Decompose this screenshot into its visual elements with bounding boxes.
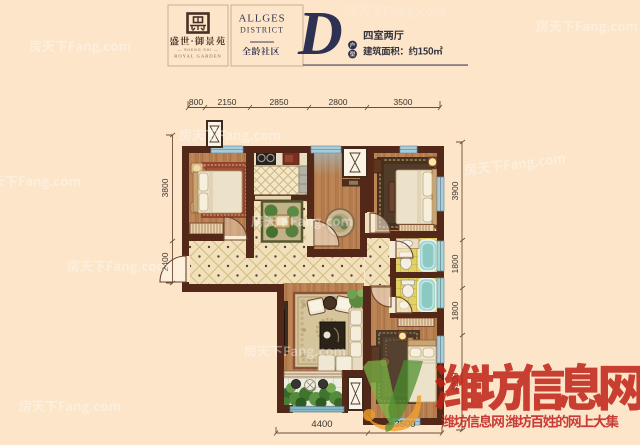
svg-text:1800: 1800	[450, 254, 460, 273]
svg-text:ROYAL GARDEN: ROYAL GARDEN	[174, 54, 221, 59]
svg-text:2150: 2150	[218, 97, 237, 107]
svg-text:1800: 1800	[450, 301, 460, 320]
svg-text:800: 800	[189, 97, 203, 107]
svg-text:D: D	[297, 0, 343, 68]
svg-text:4400: 4400	[311, 419, 332, 430]
svg-text:2800: 2800	[329, 97, 348, 107]
svg-text:3900: 3900	[450, 181, 460, 200]
svg-text:ALLGES: ALLGES	[239, 13, 286, 25]
svg-text:3800: 3800	[160, 178, 170, 197]
svg-text:— SHENG SHI —: — SHENG SHI —	[178, 48, 219, 52]
svg-text:2400: 2400	[160, 252, 170, 271]
svg-text:DISTRICT: DISTRICT	[240, 26, 284, 35]
svg-text:3500: 3500	[394, 97, 413, 107]
svg-text:2850: 2850	[270, 97, 289, 107]
